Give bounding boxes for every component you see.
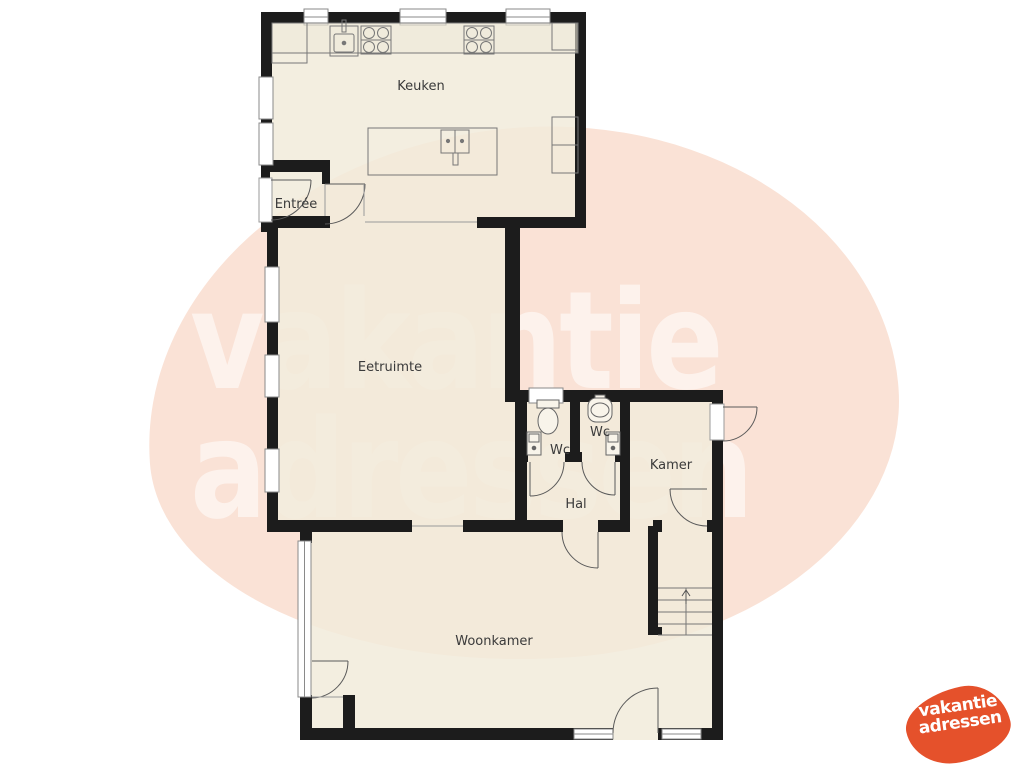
kitchen-counter: [272, 23, 578, 53]
window: [265, 449, 279, 492]
room-label-wc-left: Wc: [550, 443, 570, 458]
window: [259, 123, 273, 165]
room-label-hal: Hal: [565, 497, 586, 512]
round-washbasin-icon: [588, 395, 612, 422]
door-arc: [723, 407, 757, 441]
window: [259, 77, 273, 119]
floorplan-drawing: Keuken Entrée Eetruimte Wc Wc Kamer Hal …: [0, 0, 1024, 768]
room-label-eetruimte: Eetruimte: [358, 360, 422, 375]
room-label-entree: Entrée: [275, 197, 318, 212]
room-label-keuken: Keuken: [397, 79, 444, 94]
room-label-wc-right: Wc: [590, 425, 610, 440]
kamer-exterior-door-opening: [710, 404, 724, 440]
toilet-icon: [537, 400, 559, 434]
vakantieadressen-logo: vakantie adressen: [900, 684, 1018, 768]
window: [265, 267, 279, 322]
floorplan-page: vakantie adressen: [0, 0, 1024, 768]
washbasin-icon: [527, 432, 541, 455]
window: [265, 355, 279, 397]
front-door-opening: [259, 178, 272, 222]
room-label-woonkamer: Woonkamer: [455, 634, 533, 649]
room-label-kamer: Kamer: [650, 458, 693, 473]
